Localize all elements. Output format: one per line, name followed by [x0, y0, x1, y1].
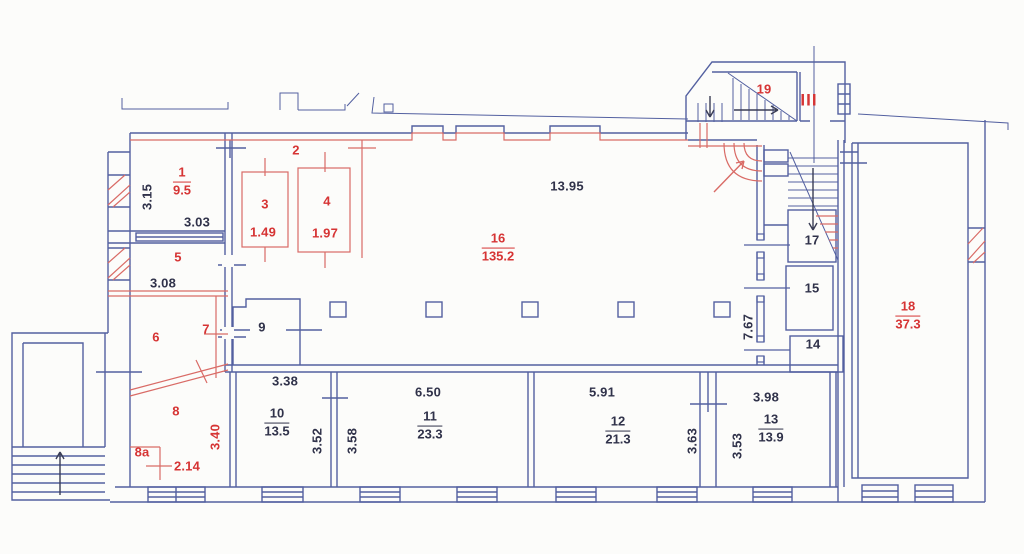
room-8a-label: 8a	[135, 446, 150, 459]
room-4-label: 4	[323, 195, 330, 208]
room-17-label: 17	[805, 234, 820, 247]
room-12-area: 21.3	[605, 432, 630, 448]
room-13-label: 13 13.9	[758, 413, 783, 446]
room-9-label: 9	[258, 321, 265, 334]
entrance-iii-label: III	[800, 92, 817, 109]
room-18-number: 18	[895, 300, 920, 317]
staircases	[698, 46, 838, 260]
dim-room10-height: 3.52	[311, 428, 324, 454]
room-10-label: 10 13.5	[264, 407, 289, 440]
stair-19-label: 19	[757, 83, 772, 96]
floor-plan-sheet: 1 9.5 3.15 3.03 2 3 1.49 4 1.97 5 3.08 6…	[0, 0, 1024, 554]
room-16-area: 135.2	[482, 249, 515, 265]
room-14-label: 14	[806, 338, 821, 351]
dim-room8a-width: 2.14	[174, 460, 200, 473]
hall-columns	[330, 302, 730, 317]
room-18-label: 18 37.3	[895, 300, 920, 333]
dim-hall-width: 13.95	[550, 180, 584, 193]
dim-room1-height: 3.15	[141, 184, 154, 210]
dim-room5-width: 3.08	[150, 277, 176, 290]
dim-room13-height: 3.53	[731, 433, 744, 459]
room-6-label: 6	[152, 331, 159, 344]
room-10-area: 13.5	[264, 424, 289, 440]
dim-room13-width: 3.98	[753, 391, 779, 404]
dim-room12-width: 5.91	[589, 386, 615, 399]
red-markup	[108, 123, 985, 480]
room-11-area: 23.3	[417, 427, 442, 443]
room-18-area: 37.3	[895, 317, 920, 333]
exterior-contour	[122, 93, 1008, 130]
room-11-number: 11	[417, 410, 442, 427]
room-1-number: 1	[173, 166, 191, 183]
room-13-number: 13	[758, 413, 783, 430]
dim-room11-width: 6.50	[415, 386, 441, 399]
room-16-number: 16	[482, 232, 515, 249]
room-11-label: 11 23.3	[417, 410, 442, 443]
dim-hall-height: 7.67	[742, 314, 755, 340]
room-13-area: 13.9	[758, 430, 783, 446]
room-3-area: 1.49	[250, 226, 276, 239]
dim-room10-width: 3.38	[272, 375, 298, 388]
room-12-label: 12 21.3	[605, 415, 630, 448]
dim-room1-width: 3.03	[184, 216, 210, 229]
room-12-number: 12	[605, 415, 630, 432]
dim-room8-height: 3.40	[209, 424, 222, 450]
room-8-label: 8	[172, 405, 179, 418]
room-7-label: 7	[202, 323, 209, 336]
room-2-label: 2	[292, 144, 299, 157]
room-4-area: 1.97	[312, 227, 338, 240]
room-3-label: 3	[261, 198, 268, 211]
room-16-label: 16 135.2	[482, 232, 515, 265]
room-5-label: 5	[174, 251, 181, 264]
room-10-number: 10	[264, 407, 289, 424]
room-1-label: 1 9.5	[173, 166, 191, 199]
room-1-area: 9.5	[173, 183, 191, 199]
dim-room11-height: 3.58	[346, 428, 359, 454]
room-15-label: 15	[805, 282, 820, 295]
dim-corridor-height: 3.63	[686, 428, 699, 454]
